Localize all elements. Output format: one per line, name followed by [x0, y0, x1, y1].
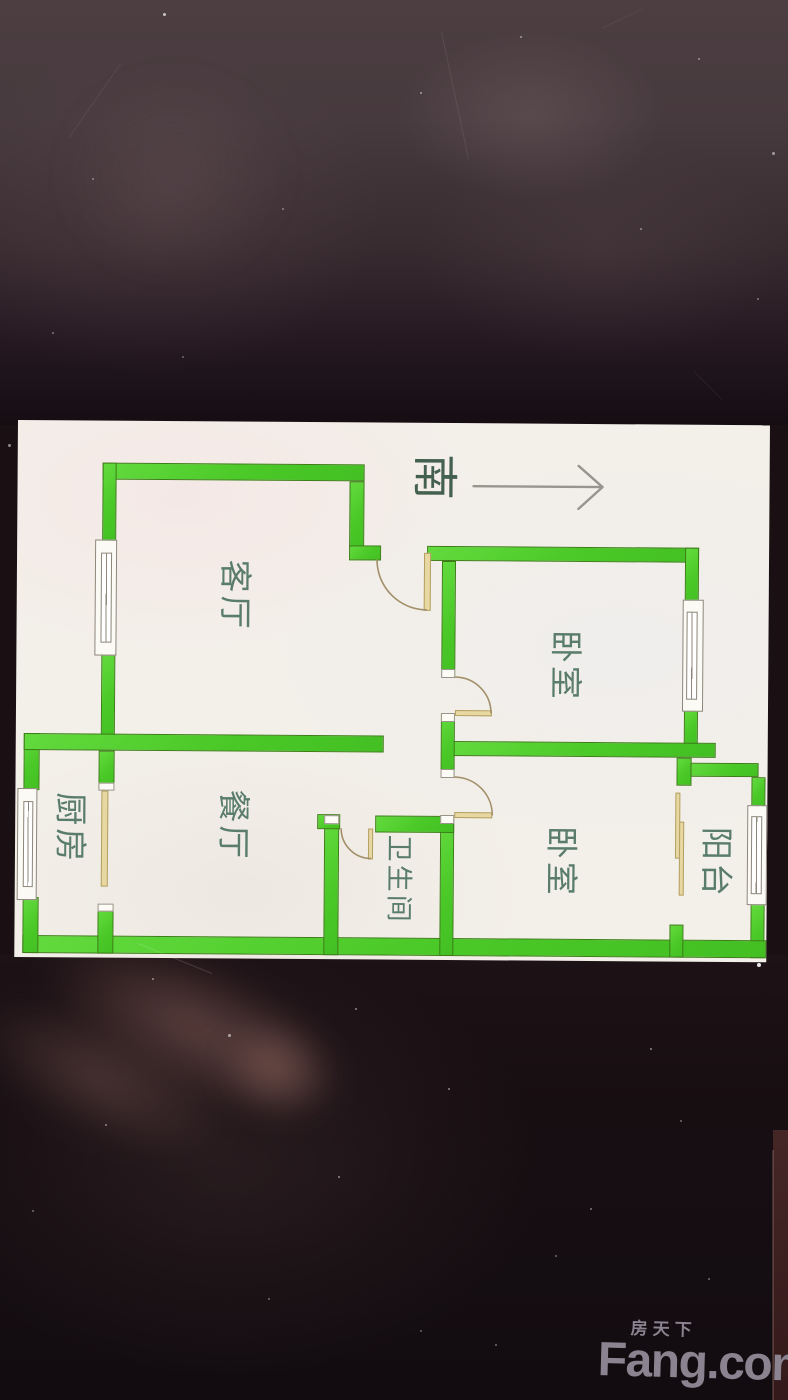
- compass-south-label: 南: [411, 454, 457, 500]
- door-frame-cap: [441, 713, 455, 722]
- dust-speck: [590, 1208, 592, 1210]
- photo-of-screen: 南 客厅 卧室 卧室 餐厅 厨房 卫生间 阳台 房天下 Fang.com: [0, 0, 788, 1400]
- wall-segment: [441, 561, 456, 678]
- dust-speck: [228, 1034, 231, 1037]
- dust-speck: [555, 1255, 557, 1257]
- window-glass: [100, 553, 112, 643]
- dust-speck: [650, 1048, 652, 1050]
- wall-segment: [669, 925, 683, 958]
- wall-segment: [22, 935, 766, 958]
- door-arc-bathroom: [341, 828, 371, 858]
- dust-speck: [268, 1298, 270, 1300]
- window-glass: [23, 801, 34, 887]
- dust-speck: [420, 92, 422, 94]
- wall-segment: [691, 763, 759, 777]
- wall-segment: [101, 653, 116, 741]
- dust-speck: [152, 978, 154, 980]
- dust-speck: [338, 1176, 340, 1178]
- dust-speck: [355, 1008, 357, 1010]
- dust-speck: [92, 178, 94, 180]
- wall-segment: [685, 548, 699, 604]
- door-leaf-bedroom-1: [455, 710, 492, 716]
- label-char: 生: [385, 865, 412, 892]
- room-label-balcony: 阳台: [700, 827, 733, 896]
- dust-speck: [495, 1344, 497, 1346]
- dust-speck: [757, 963, 761, 967]
- dust-speck: [757, 298, 759, 300]
- compass-arrow: [473, 465, 602, 509]
- label-char: 台: [700, 863, 733, 896]
- wall-segment: [751, 777, 765, 807]
- door-leaf-bathroom: [368, 828, 373, 859]
- door-arc-bedroom-2: [454, 777, 492, 815]
- label-char: 室: [545, 862, 578, 895]
- dust-speck: [680, 1120, 682, 1122]
- dust-speck: [772, 152, 775, 155]
- dust-speck: [448, 1088, 450, 1090]
- window-glass: [686, 612, 698, 700]
- wall-segment: [97, 911, 113, 954]
- sliding-door-balcony: [679, 822, 685, 896]
- label-char: 客: [219, 559, 252, 592]
- floor-plan-image: 南 客厅 卧室 卧室 餐厅 厨房 卫生间 阳台: [14, 420, 770, 962]
- dust-speck: [182, 356, 184, 358]
- room-label-living-room: 客厅: [219, 559, 252, 628]
- watermark-brand-en: Fang.com: [597, 1336, 788, 1390]
- label-char: 南: [411, 454, 457, 500]
- dust-speck: [420, 1330, 422, 1332]
- dust-speck: [520, 36, 522, 38]
- watermark: 房天下 Fang.com: [597, 1319, 788, 1390]
- wall-segment: [323, 815, 339, 955]
- door-arc-bedroom-1: [455, 677, 491, 713]
- label-char: 厅: [217, 825, 250, 858]
- door-frame-cap: [324, 815, 339, 824]
- dust-speck: [640, 228, 642, 230]
- dust-speck: [105, 1124, 107, 1126]
- room-label-bathroom: 卫生间: [385, 835, 413, 922]
- door-frame-cap: [98, 904, 114, 912]
- wall-segment: [349, 481, 364, 547]
- room-label-bedroom-1: 卧室: [549, 630, 582, 699]
- door-leaf-bedroom-2: [454, 812, 492, 818]
- room-label-dining-room: 餐厅: [217, 789, 250, 858]
- wall-segment: [448, 741, 716, 758]
- dust-speck: [163, 13, 166, 16]
- wall-segment: [427, 546, 699, 563]
- label-char: 卧: [549, 630, 582, 663]
- door-leaf-entry: [424, 553, 431, 611]
- dust-speck: [708, 1278, 710, 1280]
- wall-segment: [22, 897, 38, 953]
- wall-segment: [349, 545, 381, 560]
- label-char: 间: [385, 895, 412, 922]
- label-char: 餐: [217, 789, 250, 822]
- label-char: 房: [54, 828, 87, 861]
- dust-speck: [282, 208, 284, 210]
- door-frame-cap: [441, 769, 455, 778]
- label-char: 厅: [219, 595, 252, 628]
- wall-segment: [102, 463, 117, 543]
- wall-segment: [24, 733, 384, 753]
- wall-segment: [676, 758, 691, 786]
- label-char: 阳: [700, 827, 733, 860]
- dust-speck: [698, 58, 700, 60]
- label-char: 厨: [54, 792, 87, 825]
- door-frame-cap: [440, 815, 454, 824]
- door-frame-cap: [441, 669, 455, 678]
- wall-segment: [103, 463, 365, 482]
- label-char: 室: [549, 666, 582, 699]
- sliding-door-kitchen: [101, 791, 109, 887]
- door-frame-cap: [98, 783, 114, 791]
- dust-speck: [32, 1210, 34, 1212]
- window-glass: [751, 816, 763, 894]
- dust-speck: [8, 444, 11, 447]
- door-arc-entry: [377, 560, 427, 610]
- room-label-bedroom-2: 卧室: [545, 826, 578, 895]
- room-label-kitchen: 厨房: [54, 792, 87, 861]
- label-char: 卧: [545, 826, 578, 859]
- dust-speck: [52, 332, 54, 334]
- label-char: 卫: [385, 835, 412, 862]
- wall-segment: [439, 815, 454, 956]
- wall-segment: [684, 710, 698, 745]
